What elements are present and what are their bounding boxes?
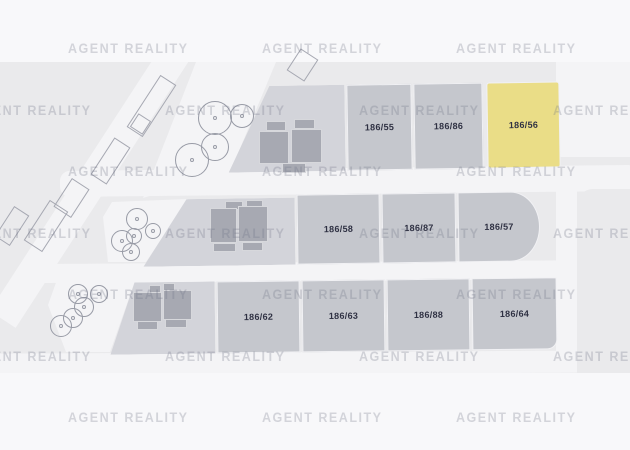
watermark-text: AGENT REALITY <box>262 410 382 425</box>
plot-map-canvas: 186/55 186/86 186/56 186/58 186/87 186/5… <box>0 0 630 450</box>
watermark-text: AGENT REALITY <box>456 410 576 425</box>
watermark-text: AGENT REALITY <box>456 41 576 56</box>
watermark-text: AGENT REALITY <box>262 41 382 56</box>
building-footprint-row3 <box>0 62 630 373</box>
cadastral-map: 186/55 186/86 186/56 186/58 186/87 186/5… <box>0 62 630 373</box>
watermark-text: AGENT REALITY <box>68 410 188 425</box>
watermark-text: AGENT REALITY <box>68 41 188 56</box>
